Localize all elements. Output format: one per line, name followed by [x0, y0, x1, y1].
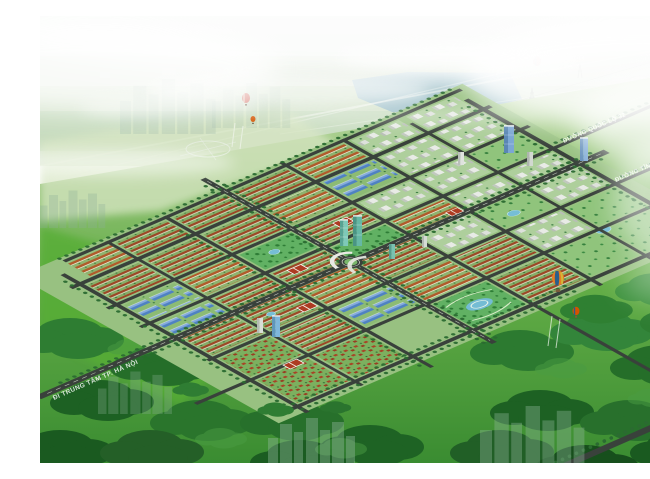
tower-center-1: [340, 219, 348, 246]
ghost-city-bottom-center: [268, 418, 355, 463]
tower-mid-3: [389, 244, 395, 259]
ghost-city-left: [40, 191, 105, 229]
tower-mid-2: [527, 152, 533, 166]
masterplan-aerial-render: ĐƯỜNG QUỐC LỘ 32 ĐƯỜNG TỈNH LỘ 422 ĐI TR…: [40, 16, 650, 463]
ghost-city-bottom-right: [480, 406, 584, 463]
tower-center-2: [353, 215, 362, 246]
tower-mid-1: [458, 152, 464, 165]
tower-south-1: [272, 315, 280, 337]
masterplan-render-figure: ĐƯỜNG QUỐC LỘ 32 ĐƯỜNG TỈNH LỘ 422 ĐI TR…: [40, 16, 650, 463]
tower-mid-4: [422, 236, 427, 247]
tower-south-2: [257, 318, 263, 333]
tower-east-1: [504, 125, 514, 153]
